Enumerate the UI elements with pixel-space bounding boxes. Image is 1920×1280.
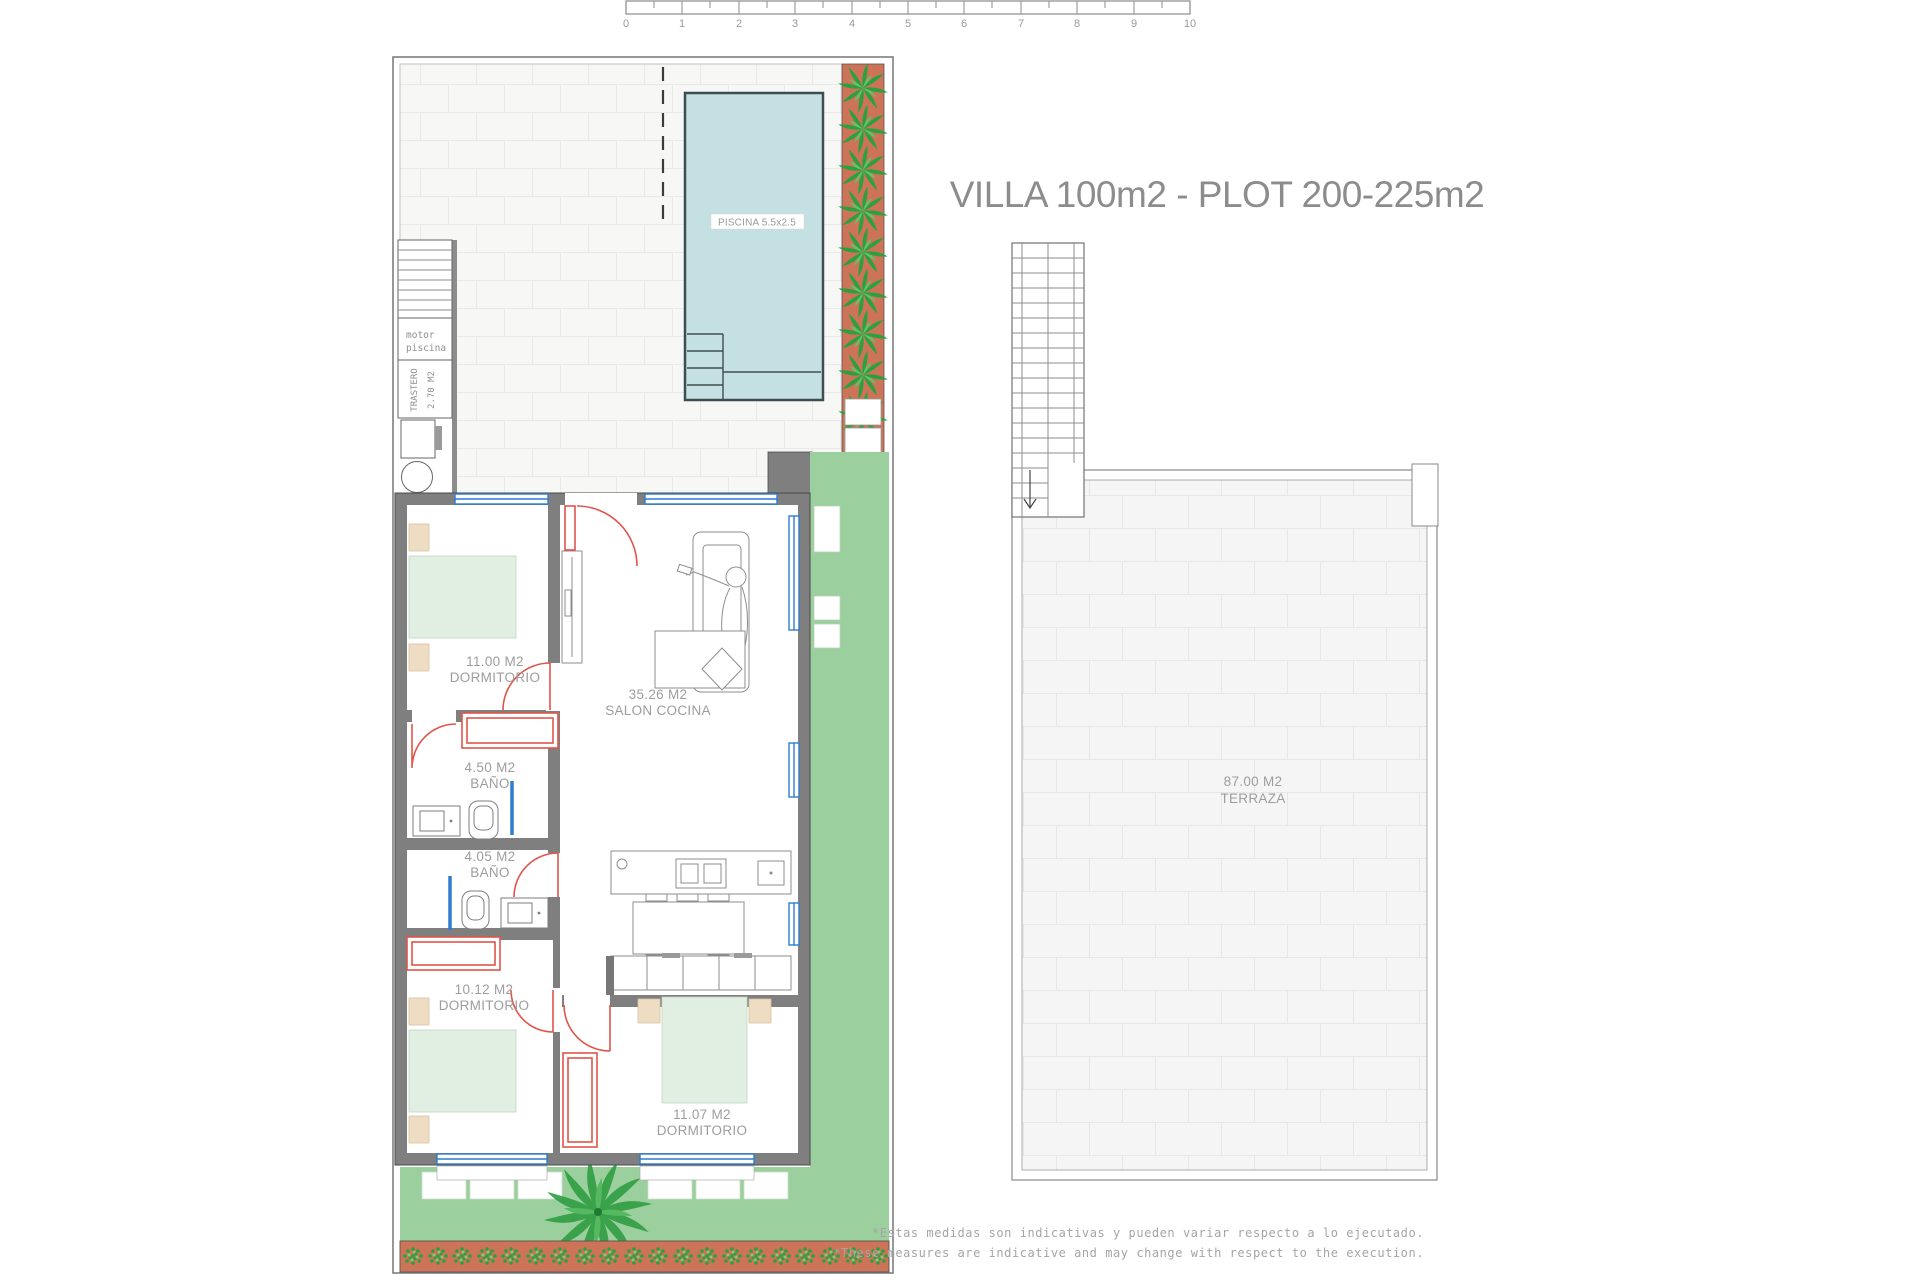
- disclaimer-line-en: *These measures are indicative and may c…: [833, 1246, 1424, 1260]
- wardrobe: [407, 937, 500, 970]
- scale-tick-label: 9: [1131, 18, 1137, 30]
- disclaimer-line-es: *Estas medidas son indicativas y pueden …: [872, 1226, 1424, 1240]
- pool: PISCINA 5.5x2.5: [685, 93, 823, 400]
- scale-tick-label: 6: [961, 18, 967, 30]
- pool-motor-label-1: motor: [406, 330, 435, 341]
- bath-2-area-label: 4.05 M2: [465, 849, 516, 864]
- window: [437, 1154, 547, 1180]
- roof-plan: 87.00 M2 TERRAZA: [1012, 243, 1438, 1180]
- window-sill: [437, 1166, 547, 1180]
- scale-tick-label: 7: [1018, 18, 1024, 30]
- corridor-wall: [452, 240, 457, 493]
- scale-tick-label: 4: [849, 18, 855, 30]
- ground-floor-plan: PISCINA 5.5x2.5 motor piscina TRASTERO 2…: [393, 57, 893, 1273]
- floor-plan-canvas: 0 1 2 3 4 5 6 7 8 9 10: [0, 0, 1920, 1280]
- window: [645, 494, 777, 504]
- scale-ruler: 0 1 2 3 4 5 6 7 8 9 10: [623, 1, 1196, 30]
- scale-tick-label: 2: [736, 18, 742, 30]
- kitchen-counter: [606, 953, 791, 995]
- coffee-table: [655, 631, 745, 690]
- porch-slab: [814, 624, 840, 648]
- scale-tick-label: 0: [623, 18, 629, 30]
- door-opening: [412, 706, 456, 724]
- bath-1-area-label: 4.50 M2: [465, 760, 516, 775]
- scale-tick-label: 5: [905, 18, 911, 30]
- scale-tick-label: 3: [792, 18, 798, 30]
- porch-slab: [814, 506, 840, 552]
- storage-fixture-tab: [435, 426, 442, 450]
- page-title: VILLA 100m2 - PLOT 200-225m2: [950, 174, 1484, 215]
- side-planter: [838, 63, 888, 455]
- storage-room: TRASTERO 2.70 M2: [398, 360, 452, 418]
- door-opening: [546, 663, 562, 711]
- storage-fixture: [401, 420, 435, 458]
- house: 11.00 M2 DORMITORIO 35.26 M2 SALON COCIN…: [395, 493, 810, 1180]
- pool-motor-label-2: piscina: [406, 343, 446, 354]
- terrace-name-label: TERRAZA: [1220, 791, 1285, 806]
- storage-area-label: 2.70 M2: [427, 371, 437, 409]
- bedroom-1-area-label: 11.00 M2: [466, 654, 524, 669]
- scale-tick-label: 10: [1184, 18, 1196, 30]
- disclaimer: *Estas medidas son indicativas y pueden …: [833, 1226, 1424, 1260]
- wardrobe: [462, 713, 558, 748]
- window: [789, 903, 799, 945]
- terrace-notch: [1412, 464, 1438, 526]
- window-sill: [640, 1166, 754, 1180]
- salon-area-label: 35.26 M2: [629, 687, 688, 702]
- kitchen-island: [611, 851, 791, 894]
- door-opening: [546, 853, 562, 897]
- bath-1-name-label: BAÑO: [470, 776, 509, 791]
- floor-plan-page: 0 1 2 3 4 5 6 7 8 9 10: [0, 0, 1920, 1280]
- window: [455, 494, 548, 504]
- scale-tick-label: 1: [679, 18, 685, 30]
- terrace-area-label: 87.00 M2: [1224, 774, 1283, 789]
- window: [640, 1154, 754, 1180]
- storage-name-label: TRASTERO: [410, 368, 420, 411]
- window: [789, 516, 799, 630]
- salon-name-label: SALON COCINA: [605, 703, 711, 718]
- terrace: 87.00 M2 TERRAZA: [1012, 464, 1438, 1180]
- bedroom-2-area-label: 10.12 M2: [455, 982, 514, 997]
- bath-2-name-label: BAÑO: [470, 865, 509, 880]
- pool-label: PISCINA 5.5x2.5: [718, 218, 796, 229]
- roof-staircase: [1012, 243, 1084, 517]
- pool-motor-room: motor piscina: [398, 318, 452, 360]
- entry-pad: [845, 399, 881, 425]
- bedroom-3-name-label: DORMITORIO: [657, 1123, 748, 1138]
- exterior-staircase: [398, 240, 452, 318]
- scale-tick-label: 8: [1074, 18, 1080, 30]
- hall-shelf: [562, 551, 582, 663]
- porch-slab: [814, 596, 840, 620]
- garden-east: [810, 452, 889, 1241]
- bedroom-1-name-label: DORMITORIO: [450, 670, 541, 685]
- water-tank: [402, 462, 433, 493]
- window: [789, 743, 799, 797]
- wardrobe: [563, 1053, 597, 1147]
- service-corridor: motor piscina TRASTERO 2.70 M2: [398, 240, 457, 493]
- front-door-opening: [565, 493, 637, 506]
- entry-pad: [845, 428, 881, 454]
- door-opening: [564, 993, 610, 1009]
- bedroom-3-area-label: 11.07 M2: [673, 1107, 731, 1122]
- south-planter: [400, 1241, 889, 1272]
- bedroom-2-name-label: DORMITORIO: [439, 998, 530, 1013]
